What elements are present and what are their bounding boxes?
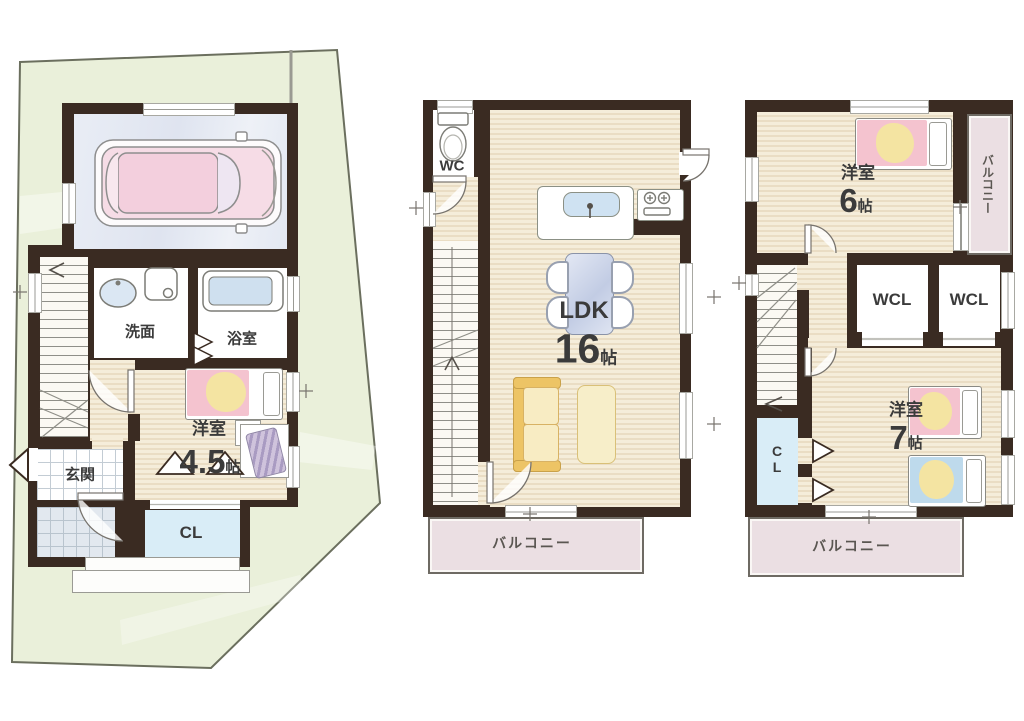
land-highlight-1 — [20, 192, 62, 234]
f3-closet-label: CL — [769, 443, 785, 475]
f3-bed7b-pillow — [966, 459, 982, 503]
f1-bedroom-size-number: 4.5 — [180, 443, 226, 481]
f3-closet-opening-1 — [798, 438, 812, 464]
f1-bed-pillow — [263, 372, 280, 416]
f2-balcony-label: バルコニー — [492, 533, 572, 553]
f3-balcony-window — [953, 203, 969, 251]
f3-bed7a-comforter — [918, 392, 952, 430]
f3-bedroom7-door-opening — [808, 338, 847, 348]
f3-stair-hall-opening — [797, 265, 809, 290]
f3-bedroom7-name-label: 洋室 — [889, 396, 923, 421]
f1-entrance-label: 玄関 — [65, 464, 95, 485]
f3-bed7b-comforter — [919, 460, 954, 499]
f3-bedroom6-door-opening — [808, 253, 847, 265]
f1-porch-step-lower — [72, 570, 250, 593]
f2-ldk-size-unit: 帖 — [600, 344, 617, 373]
f1-garage-window — [62, 183, 76, 224]
f2-chair-3 — [611, 261, 634, 294]
f3-wcl-right-label: WCL — [950, 290, 989, 310]
f3-side-balcony-label: バルコニー — [980, 154, 997, 214]
f1-entry-arrow-icon — [10, 449, 28, 481]
f2-side-door-opening — [679, 152, 691, 175]
f3-hallway-floor — [809, 265, 847, 338]
f2-ldk-door-opening — [478, 462, 490, 505]
f3-bedroom6-size-label: 6 帖 — [839, 182, 872, 220]
f1-closet-door-track — [150, 500, 240, 509]
f3-bedroom7-size-label: 7 帖 — [889, 419, 922, 457]
f3-bedroom7-window-2 — [1001, 455, 1015, 505]
f3-wcl-window — [1001, 272, 1015, 329]
f2-ldk-window-2 — [679, 392, 693, 459]
f1-bath-label: 浴室 — [227, 328, 257, 349]
f1-bed-comforter — [206, 372, 246, 412]
f2-hallway-floor — [433, 177, 478, 241]
f1-bedroom-name-label: 洋室 — [192, 415, 226, 440]
f2-chair-4 — [611, 296, 634, 329]
f2-chair-1 — [546, 261, 569, 294]
f2-stairs — [433, 241, 478, 505]
f3-bed7a-pillow — [962, 390, 978, 435]
floorplan-canvas: 洗面 浴室 玄関 洋室 4.5 帖 CL WC LDK 16 帖 バルコニー 洋… — [0, 0, 1024, 721]
f2-ldk-window-1 — [679, 263, 693, 334]
f2-kitchen-wall-stub — [627, 219, 683, 235]
f3-bedroom7-size-unit: 帖 — [908, 432, 923, 457]
f1-bedroom-size-label: 4.5 帖 — [180, 443, 241, 481]
f1-washroom-label: 洗面 — [125, 321, 155, 342]
f1-bath-window — [287, 276, 300, 312]
f3-wcl-left-label: WCL — [873, 290, 912, 310]
f2-stove — [637, 189, 684, 221]
f1-closet-label: CL — [180, 523, 203, 543]
f3-bed6-comforter — [876, 123, 914, 163]
f1-front-door-opening — [28, 448, 38, 481]
f3-bed6-pillow — [929, 122, 947, 166]
f2-kitchen-sink — [563, 192, 620, 217]
f2-sofa-cushion-2 — [523, 424, 559, 462]
f1-garage-shutter — [143, 103, 235, 116]
f3-bedroom6-left-window — [745, 157, 759, 202]
f3-wcl-right-door — [943, 332, 995, 346]
f1-bedroom-window-1 — [286, 372, 300, 412]
f1-stairs — [40, 257, 88, 437]
f1-door-wall-stub — [128, 414, 140, 441]
f3-stair-window — [745, 274, 759, 296]
f3-bedroom7-size-number: 7 — [889, 419, 907, 457]
f2-sofa-cushion-1 — [523, 387, 559, 425]
f3-bedroom6-name-label: 洋室 — [841, 159, 875, 184]
f3-bottom-balcony-label: バルコニー — [812, 536, 892, 556]
f2-ldk-size-number: 16 — [555, 326, 601, 373]
f1-garage-floor — [74, 114, 287, 249]
f3-stairs — [757, 265, 797, 405]
f1-washroom-floor — [94, 268, 188, 358]
f2-ldk-name-label: LDK — [559, 297, 608, 325]
f3-bedroom6-size-unit: 帖 — [858, 195, 873, 220]
f3-bedroom6-top-window — [850, 100, 929, 114]
f2-hall-window — [423, 192, 436, 227]
f1-entrance-porch-floor — [37, 507, 115, 557]
f1-bedroom-size-unit: 帖 — [225, 456, 240, 481]
f1-stair-window — [28, 273, 42, 313]
f2-wc-label: WC — [440, 158, 465, 175]
f3-bedroom6-size-number: 6 — [839, 182, 857, 220]
f3-closet-opening-2 — [798, 477, 812, 503]
f3-bedroom7-window-1 — [1001, 390, 1015, 438]
f2-ottoman — [577, 385, 616, 464]
f3-wcl-left-door — [862, 332, 923, 346]
f2-wc-window — [437, 100, 473, 114]
land-highlight-2 — [298, 432, 376, 470]
f2-ldk-size-label: 16 帖 — [555, 326, 618, 373]
